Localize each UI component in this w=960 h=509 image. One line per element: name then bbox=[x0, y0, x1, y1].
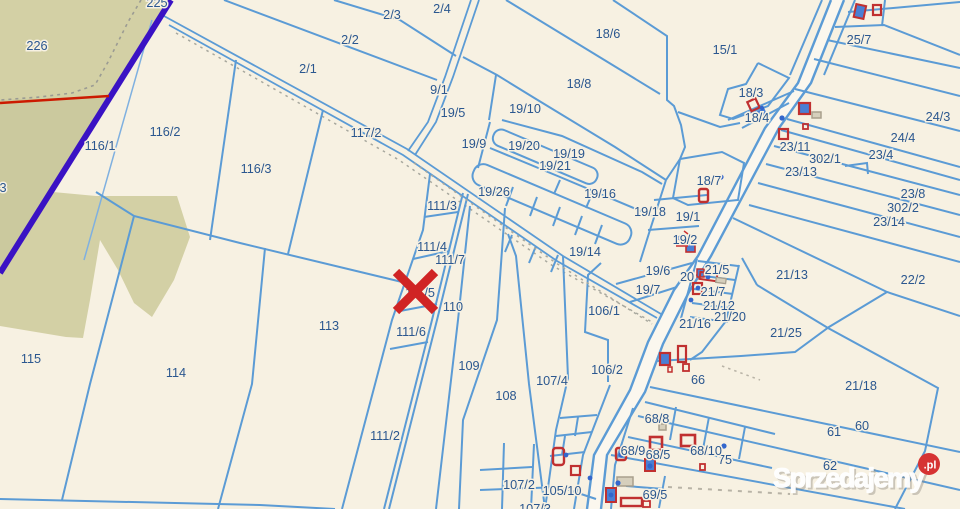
svg-text:19/14: 19/14 bbox=[569, 245, 601, 259]
svg-text:15/1: 15/1 bbox=[713, 43, 738, 57]
svg-text:116/3: 116/3 bbox=[241, 162, 272, 176]
svg-text:107/3: 107/3 bbox=[519, 502, 551, 509]
svg-text:24/4: 24/4 bbox=[891, 131, 916, 145]
svg-text:2/3: 2/3 bbox=[383, 8, 401, 22]
svg-text:19/16: 19/16 bbox=[584, 187, 616, 201]
svg-text:68/9: 68/9 bbox=[621, 444, 646, 458]
svg-text:111/2: 111/2 bbox=[370, 429, 400, 443]
svg-text:60: 60 bbox=[855, 419, 869, 433]
svg-text:18/4: 18/4 bbox=[745, 111, 770, 125]
svg-text:61: 61 bbox=[827, 425, 841, 439]
svg-text:20: 20 bbox=[680, 270, 694, 284]
svg-text:18/6: 18/6 bbox=[596, 27, 621, 41]
svg-text:19/21: 19/21 bbox=[539, 159, 571, 173]
svg-text:18/8: 18/8 bbox=[567, 77, 592, 91]
svg-text:23/4: 23/4 bbox=[869, 148, 894, 162]
svg-text:68/10: 68/10 bbox=[690, 444, 722, 458]
svg-text:107/4: 107/4 bbox=[536, 374, 568, 388]
svg-text:111/4: 111/4 bbox=[417, 240, 447, 254]
svg-text:106/2: 106/2 bbox=[591, 363, 623, 377]
svg-text:21/7: 21/7 bbox=[701, 285, 726, 299]
svg-text:113: 113 bbox=[319, 319, 339, 333]
svg-text:19/9: 19/9 bbox=[462, 137, 487, 151]
svg-text:19/2: 19/2 bbox=[673, 233, 698, 247]
svg-text:22/2: 22/2 bbox=[901, 273, 926, 287]
svg-text:302/2: 302/2 bbox=[887, 201, 919, 215]
svg-text:24/3: 24/3 bbox=[926, 110, 951, 124]
svg-text:21/13: 21/13 bbox=[776, 268, 808, 282]
svg-text:2/2: 2/2 bbox=[341, 33, 359, 47]
svg-text:116/1: 116/1 bbox=[85, 139, 116, 153]
svg-text:19/20: 19/20 bbox=[508, 139, 540, 153]
svg-text:25/7: 25/7 bbox=[847, 33, 872, 47]
svg-text:116/2: 116/2 bbox=[150, 125, 181, 139]
svg-text:109: 109 bbox=[458, 359, 479, 373]
svg-text:19/1: 19/1 bbox=[676, 210, 701, 224]
svg-text:21/5: 21/5 bbox=[705, 263, 730, 277]
svg-text:110: 110 bbox=[443, 300, 463, 314]
svg-text:19/10: 19/10 bbox=[509, 102, 541, 116]
svg-text:19/5: 19/5 bbox=[441, 106, 466, 120]
svg-text:302/1: 302/1 bbox=[809, 152, 841, 166]
svg-text:225: 225 bbox=[146, 0, 167, 10]
svg-text:23/13: 23/13 bbox=[785, 165, 817, 179]
svg-text:69/5: 69/5 bbox=[643, 488, 668, 502]
svg-text:23/11: 23/11 bbox=[780, 140, 811, 154]
svg-text:111/3: 111/3 bbox=[427, 199, 457, 213]
svg-text:Sprzedajemy: Sprzedajemy bbox=[773, 463, 925, 493]
svg-text:115: 115 bbox=[21, 352, 41, 366]
svg-text:114: 114 bbox=[166, 366, 186, 380]
svg-text:21/18: 21/18 bbox=[845, 379, 877, 393]
svg-text:111/6: 111/6 bbox=[396, 325, 426, 339]
svg-text:107/2: 107/2 bbox=[503, 478, 535, 492]
svg-text:19/18: 19/18 bbox=[634, 205, 666, 219]
svg-text:19/7: 19/7 bbox=[636, 283, 661, 297]
svg-text:21/20: 21/20 bbox=[714, 310, 746, 324]
svg-text:18/3: 18/3 bbox=[739, 86, 764, 100]
svg-text:23/8: 23/8 bbox=[901, 187, 926, 201]
svg-text:19/6: 19/6 bbox=[646, 264, 671, 278]
svg-text:108: 108 bbox=[495, 389, 516, 403]
svg-text:226: 226 bbox=[26, 39, 47, 53]
svg-text:2/1: 2/1 bbox=[299, 62, 317, 76]
svg-text:3: 3 bbox=[0, 181, 7, 195]
svg-text:66: 66 bbox=[691, 373, 705, 387]
svg-text:68/8: 68/8 bbox=[645, 412, 670, 426]
svg-text:9/1: 9/1 bbox=[430, 83, 448, 97]
svg-text:21/16: 21/16 bbox=[679, 317, 711, 331]
svg-text:23/14: 23/14 bbox=[873, 215, 905, 229]
svg-text:117/2: 117/2 bbox=[351, 126, 382, 140]
svg-text:18/7: 18/7 bbox=[697, 174, 722, 188]
svg-text:21/25: 21/25 bbox=[770, 326, 802, 340]
svg-text:105/10: 105/10 bbox=[543, 484, 582, 498]
svg-text:106/1: 106/1 bbox=[588, 304, 620, 318]
svg-text:68/5: 68/5 bbox=[646, 448, 671, 462]
svg-text:19/26: 19/26 bbox=[478, 185, 510, 199]
svg-text:2/4: 2/4 bbox=[433, 2, 451, 16]
svg-text:.pl: .pl bbox=[924, 460, 937, 472]
svg-text:111/7: 111/7 bbox=[435, 253, 465, 267]
